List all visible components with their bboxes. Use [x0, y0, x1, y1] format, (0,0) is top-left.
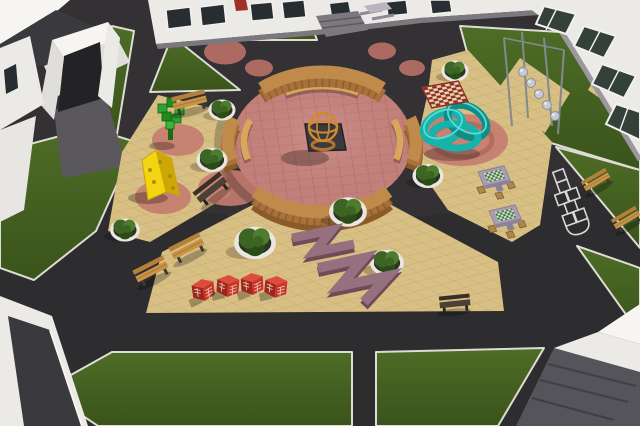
courtyard-scene [0, 0, 640, 426]
render-viewport [0, 0, 640, 426]
red-door [234, 0, 248, 11]
lawn-bottom-left [44, 352, 352, 426]
